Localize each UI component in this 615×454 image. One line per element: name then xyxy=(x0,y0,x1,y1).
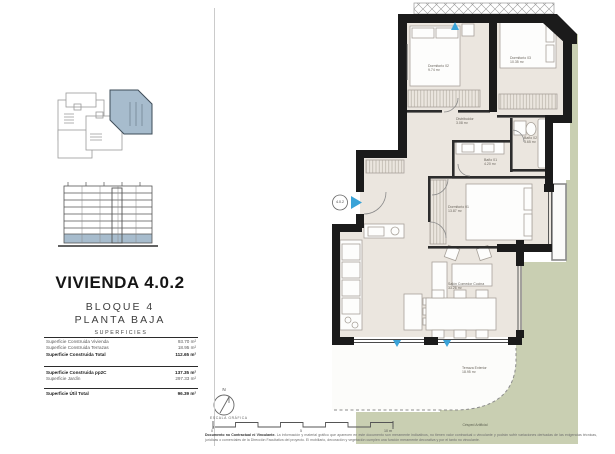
row-value: 18.95 m² xyxy=(178,346,196,351)
terrace-lower xyxy=(332,345,516,410)
highlighted-ground-floor xyxy=(64,234,152,243)
surfaces-table-group-3: Superficie Útil Total 96.39 m² xyxy=(46,392,196,397)
room-label-dormitorio-03: Dormitorio 03 10.35 m² xyxy=(510,56,531,65)
room-label-dormitorio-02: Dormitorio 02 9.74 m² xyxy=(428,64,449,73)
room-area: 33.26 m² xyxy=(448,286,484,290)
row-value: 96.39 m² xyxy=(178,392,196,397)
row-label: Superficie Útil Total xyxy=(46,392,89,397)
room-label-bano-02: Baño 02 3.65 m² xyxy=(524,136,537,145)
row-value: 93.70 m² xyxy=(178,340,196,345)
table-row: Superficie Jardín 297.33 m² xyxy=(46,377,196,382)
unit-title: VIVIENDA 4.0.2 xyxy=(20,273,220,293)
row-label: Superficie Jardín xyxy=(46,377,80,382)
room-area: 4.20 m² xyxy=(484,162,497,166)
pergola-hatch xyxy=(414,3,554,14)
row-label: Superficie Construida pp2C xyxy=(46,371,107,376)
row-value: 112.65 m² xyxy=(175,353,196,358)
room-area: 13.87 m² xyxy=(448,209,469,213)
disclaimer-title: Documento no Contractual ni Vinculante. xyxy=(205,433,275,437)
table-row: Superficie Construida Total 112.65 m² xyxy=(46,353,196,358)
room-label-terraza: Terraza Exterior 18.95 m² xyxy=(462,366,487,375)
surfaces-table-group-2: Superficie Construida pp2C 137.35 m² Sup… xyxy=(46,371,196,382)
table-row: Superficie Construida Terrazas 18.95 m² xyxy=(46,346,196,351)
surfaces-table-group-1: Superficie Construida Vivienda 93.70 m² … xyxy=(46,340,196,357)
panel-divider xyxy=(214,8,215,446)
block-subtitle: BLOQUE 4 xyxy=(20,301,220,315)
table-row: Superficie Útil Total 96.39 m² xyxy=(46,392,196,397)
room-label-dormitorio-01: Dormitorio 01 13.87 m² xyxy=(448,205,469,214)
table-rule xyxy=(44,337,198,338)
room-label-salon: Salón Comedor Cocina 33.26 m² xyxy=(448,282,484,291)
floorplan-sheet: VIVIENDA 4.0.2 BLOQUE 4 PLANTA BAJA SUPE… xyxy=(0,0,615,454)
table-row: Superficie Construida Vivienda 93.70 m² xyxy=(46,340,196,345)
elevation-svg xyxy=(56,176,160,258)
key-plan-svg xyxy=(46,86,164,166)
floor-subtitle: PLANTA BAJA xyxy=(20,314,220,328)
room-area: 9.74 m² xyxy=(428,68,449,72)
room-label-distribuidor: Distribuidor 3.08 m² xyxy=(456,117,474,126)
row-value: 297.33 m² xyxy=(175,377,196,382)
room-area: 18.95 m² xyxy=(462,370,487,374)
table-row: Superficie Construida pp2C 137.35 m² xyxy=(46,371,196,376)
terrace-upper xyxy=(552,184,566,260)
room-area: 3.65 m² xyxy=(524,140,537,144)
garden-label: Césped Artificial xyxy=(430,423,520,427)
table-rule xyxy=(44,366,198,367)
scale-caption: ESCALA GRÁFICA xyxy=(210,416,248,420)
room-area: 10.35 m² xyxy=(510,60,531,64)
table-rule xyxy=(44,388,198,389)
surfaces-table-header: SUPERFICIES xyxy=(44,330,198,336)
room-label-bano-01: Baño 01 4.20 m² xyxy=(484,158,497,167)
row-value: 137.35 m² xyxy=(175,371,196,376)
disclaimer-text: Documento no Contractual ni Vinculante. … xyxy=(205,433,597,443)
unit-badge-label: 4.0.2 xyxy=(333,200,347,204)
north-label: N xyxy=(220,387,228,392)
north-compass-icon xyxy=(214,395,234,415)
room-area: 3.08 m² xyxy=(456,121,474,125)
row-label: Superficie Construida Vivienda xyxy=(46,340,109,345)
row-label: Superficie Construida Terrazas xyxy=(46,346,109,351)
row-label: Superficie Construida Total xyxy=(46,353,106,358)
